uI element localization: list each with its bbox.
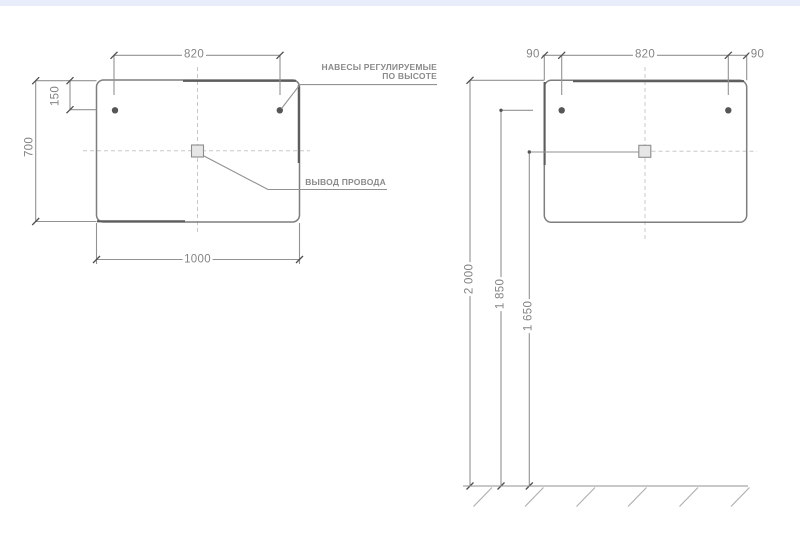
- hanger-dot-left-install: [559, 107, 565, 113]
- centerlines-install: [645, 67, 757, 240]
- dim-label-offset-left: 90: [524, 49, 541, 61]
- dim-label-height-wire: 1 650: [524, 299, 536, 333]
- dim-label-height-top: 2 000: [464, 261, 476, 295]
- hanger-dot-right-install: [725, 107, 731, 113]
- wire-outlet-square-front: [192, 145, 204, 157]
- wire-outlet-square-install: [639, 145, 651, 157]
- dim-label-hanger-spacing-install: 820: [633, 49, 657, 61]
- drawing-page: 820 150 700 1000 НАВЕСЫ РЕГУЛИРУЕМЫЕ ПО …: [0, 0, 800, 550]
- note-adjustable-hangers: НАВЕСЫ РЕГУЛИРУЕМЫЕ ПО ВЫСОТЕ: [300, 63, 437, 82]
- dim-label-hanger-spacing-front: 820: [182, 49, 206, 61]
- dim-hanger-offset-top: [36, 77, 97, 113]
- leader-hangers-note: [282, 85, 438, 109]
- note-adjustable-hangers-line2: ПО ВЫСОТЕ: [382, 71, 437, 81]
- hanger-dot-left: [112, 107, 118, 113]
- dim-height-wire-outlet: [526, 150, 639, 489]
- front-view: [32, 52, 437, 264]
- installation-view: [463, 52, 757, 507]
- note-adjustable-hangers-line1: НАВЕСЫ РЕГУЛИРУЕМЫЕ: [322, 62, 438, 72]
- dim-label-offset-right: 90: [749, 49, 766, 61]
- dim-label-mirror-width: 1000: [182, 254, 213, 266]
- dim-label-height-hangers: 1 850: [495, 277, 507, 311]
- technical-drawing-canvas: [0, 0, 800, 550]
- dim-label-mirror-height: 700: [24, 137, 36, 157]
- floor-line: [463, 486, 750, 507]
- note-wire-outlet-text: ВЫВОД ПРОВОДА: [305, 177, 386, 187]
- note-wire-outlet: ВЫВОД ПРОВОДА: [268, 178, 386, 188]
- dim-label-hanger-offset-top: 150: [50, 86, 62, 106]
